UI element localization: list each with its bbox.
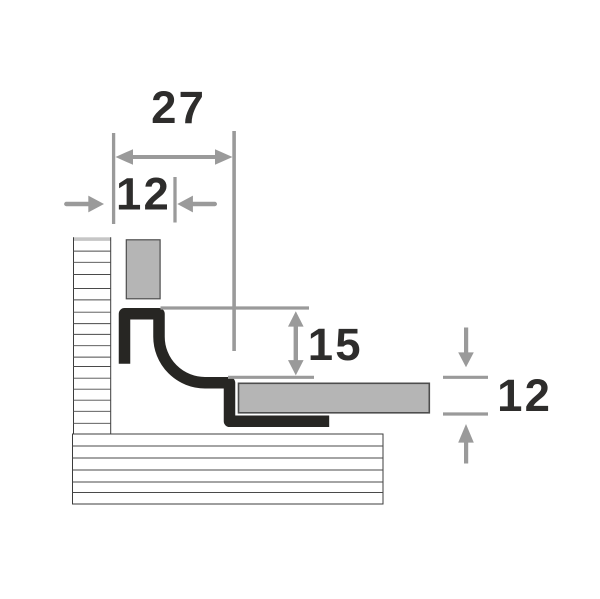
svg-text:15: 15 <box>308 319 363 370</box>
svg-text:27: 27 <box>151 82 206 133</box>
svg-text:12: 12 <box>497 370 552 421</box>
svg-text:12: 12 <box>116 169 171 220</box>
